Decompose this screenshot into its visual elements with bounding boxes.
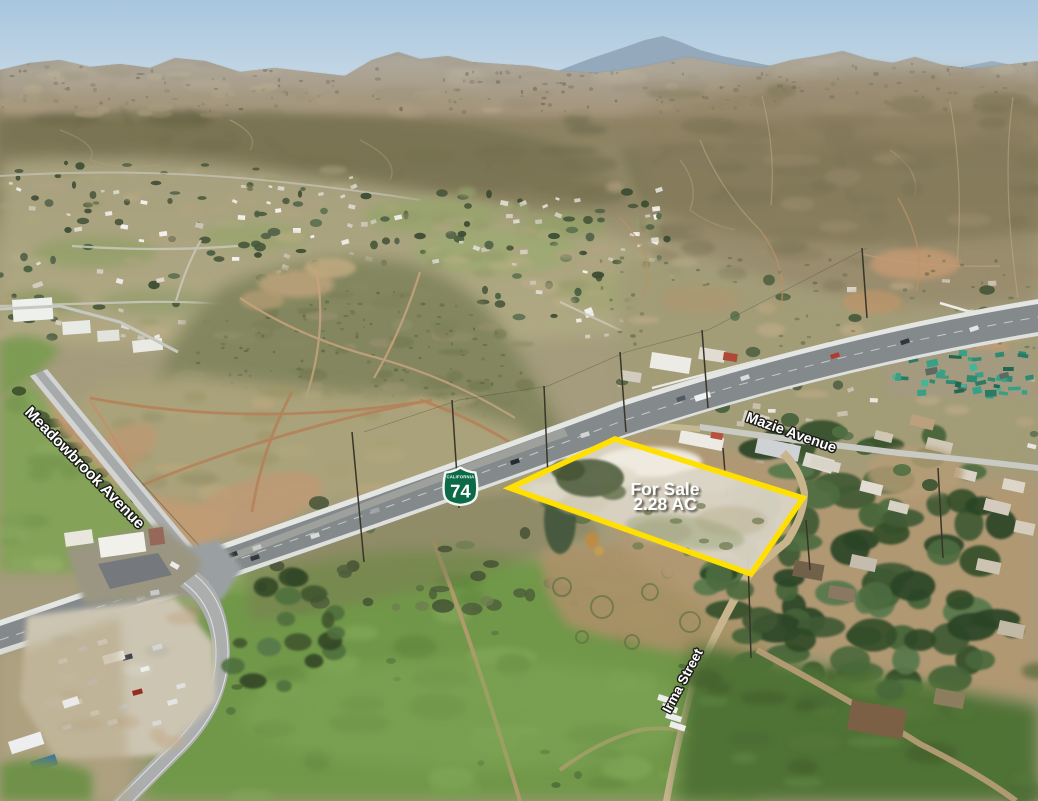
- svg-text:2.28 AC: 2.28 AC: [633, 494, 697, 514]
- svg-text:74: 74: [450, 481, 471, 502]
- svg-text:CALIFORNIA: CALIFORNIA: [446, 474, 474, 479]
